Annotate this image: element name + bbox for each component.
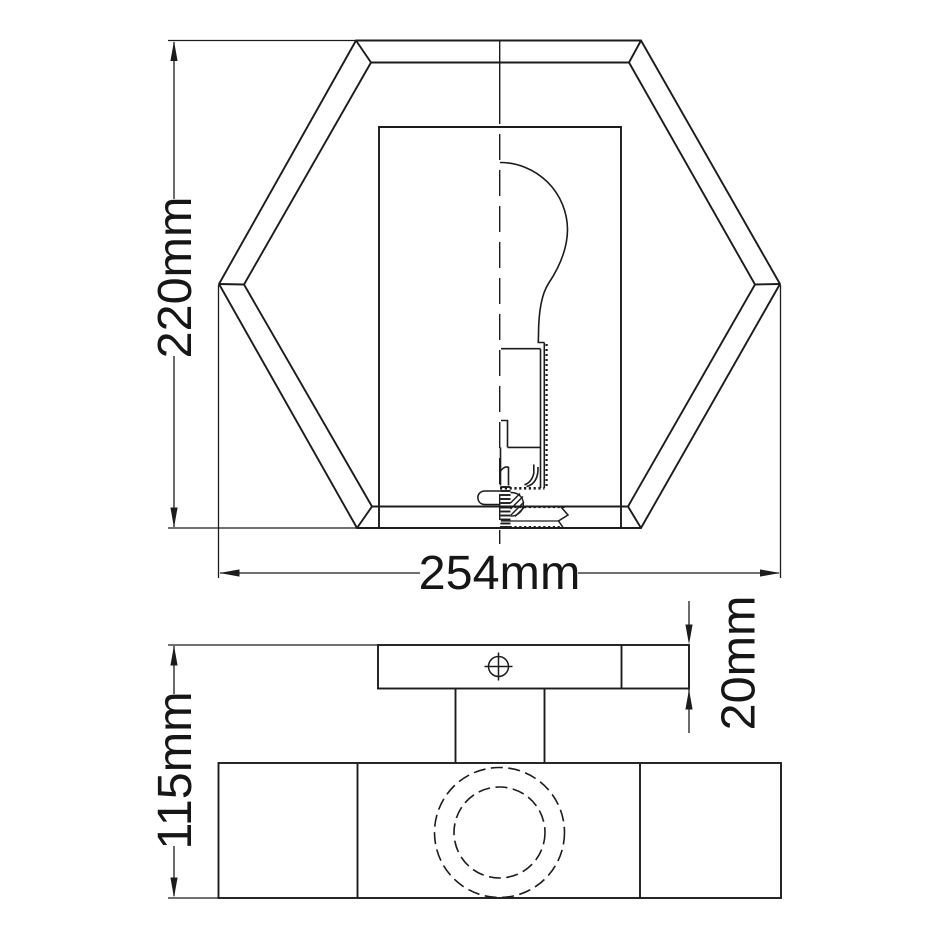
svg-text:115mm: 115mm xyxy=(148,691,202,849)
svg-text:254mm: 254mm xyxy=(419,546,581,600)
svg-text:20mm: 20mm xyxy=(712,596,766,731)
svg-text:220mm: 220mm xyxy=(148,197,202,359)
